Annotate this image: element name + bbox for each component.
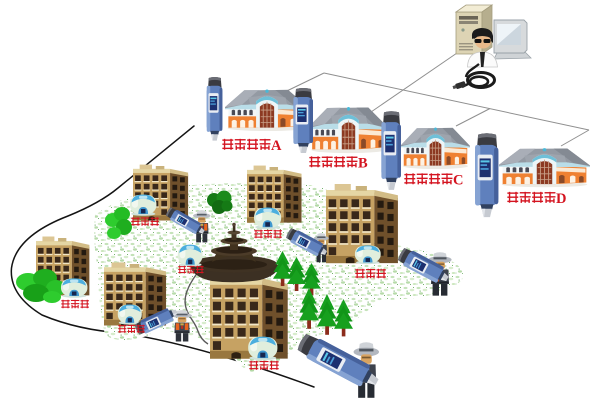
svg-text:D: D [556, 191, 566, 207]
svg-text:C: C [453, 173, 463, 189]
svg-text:B: B [358, 156, 368, 172]
svg-text:A: A [271, 138, 282, 154]
